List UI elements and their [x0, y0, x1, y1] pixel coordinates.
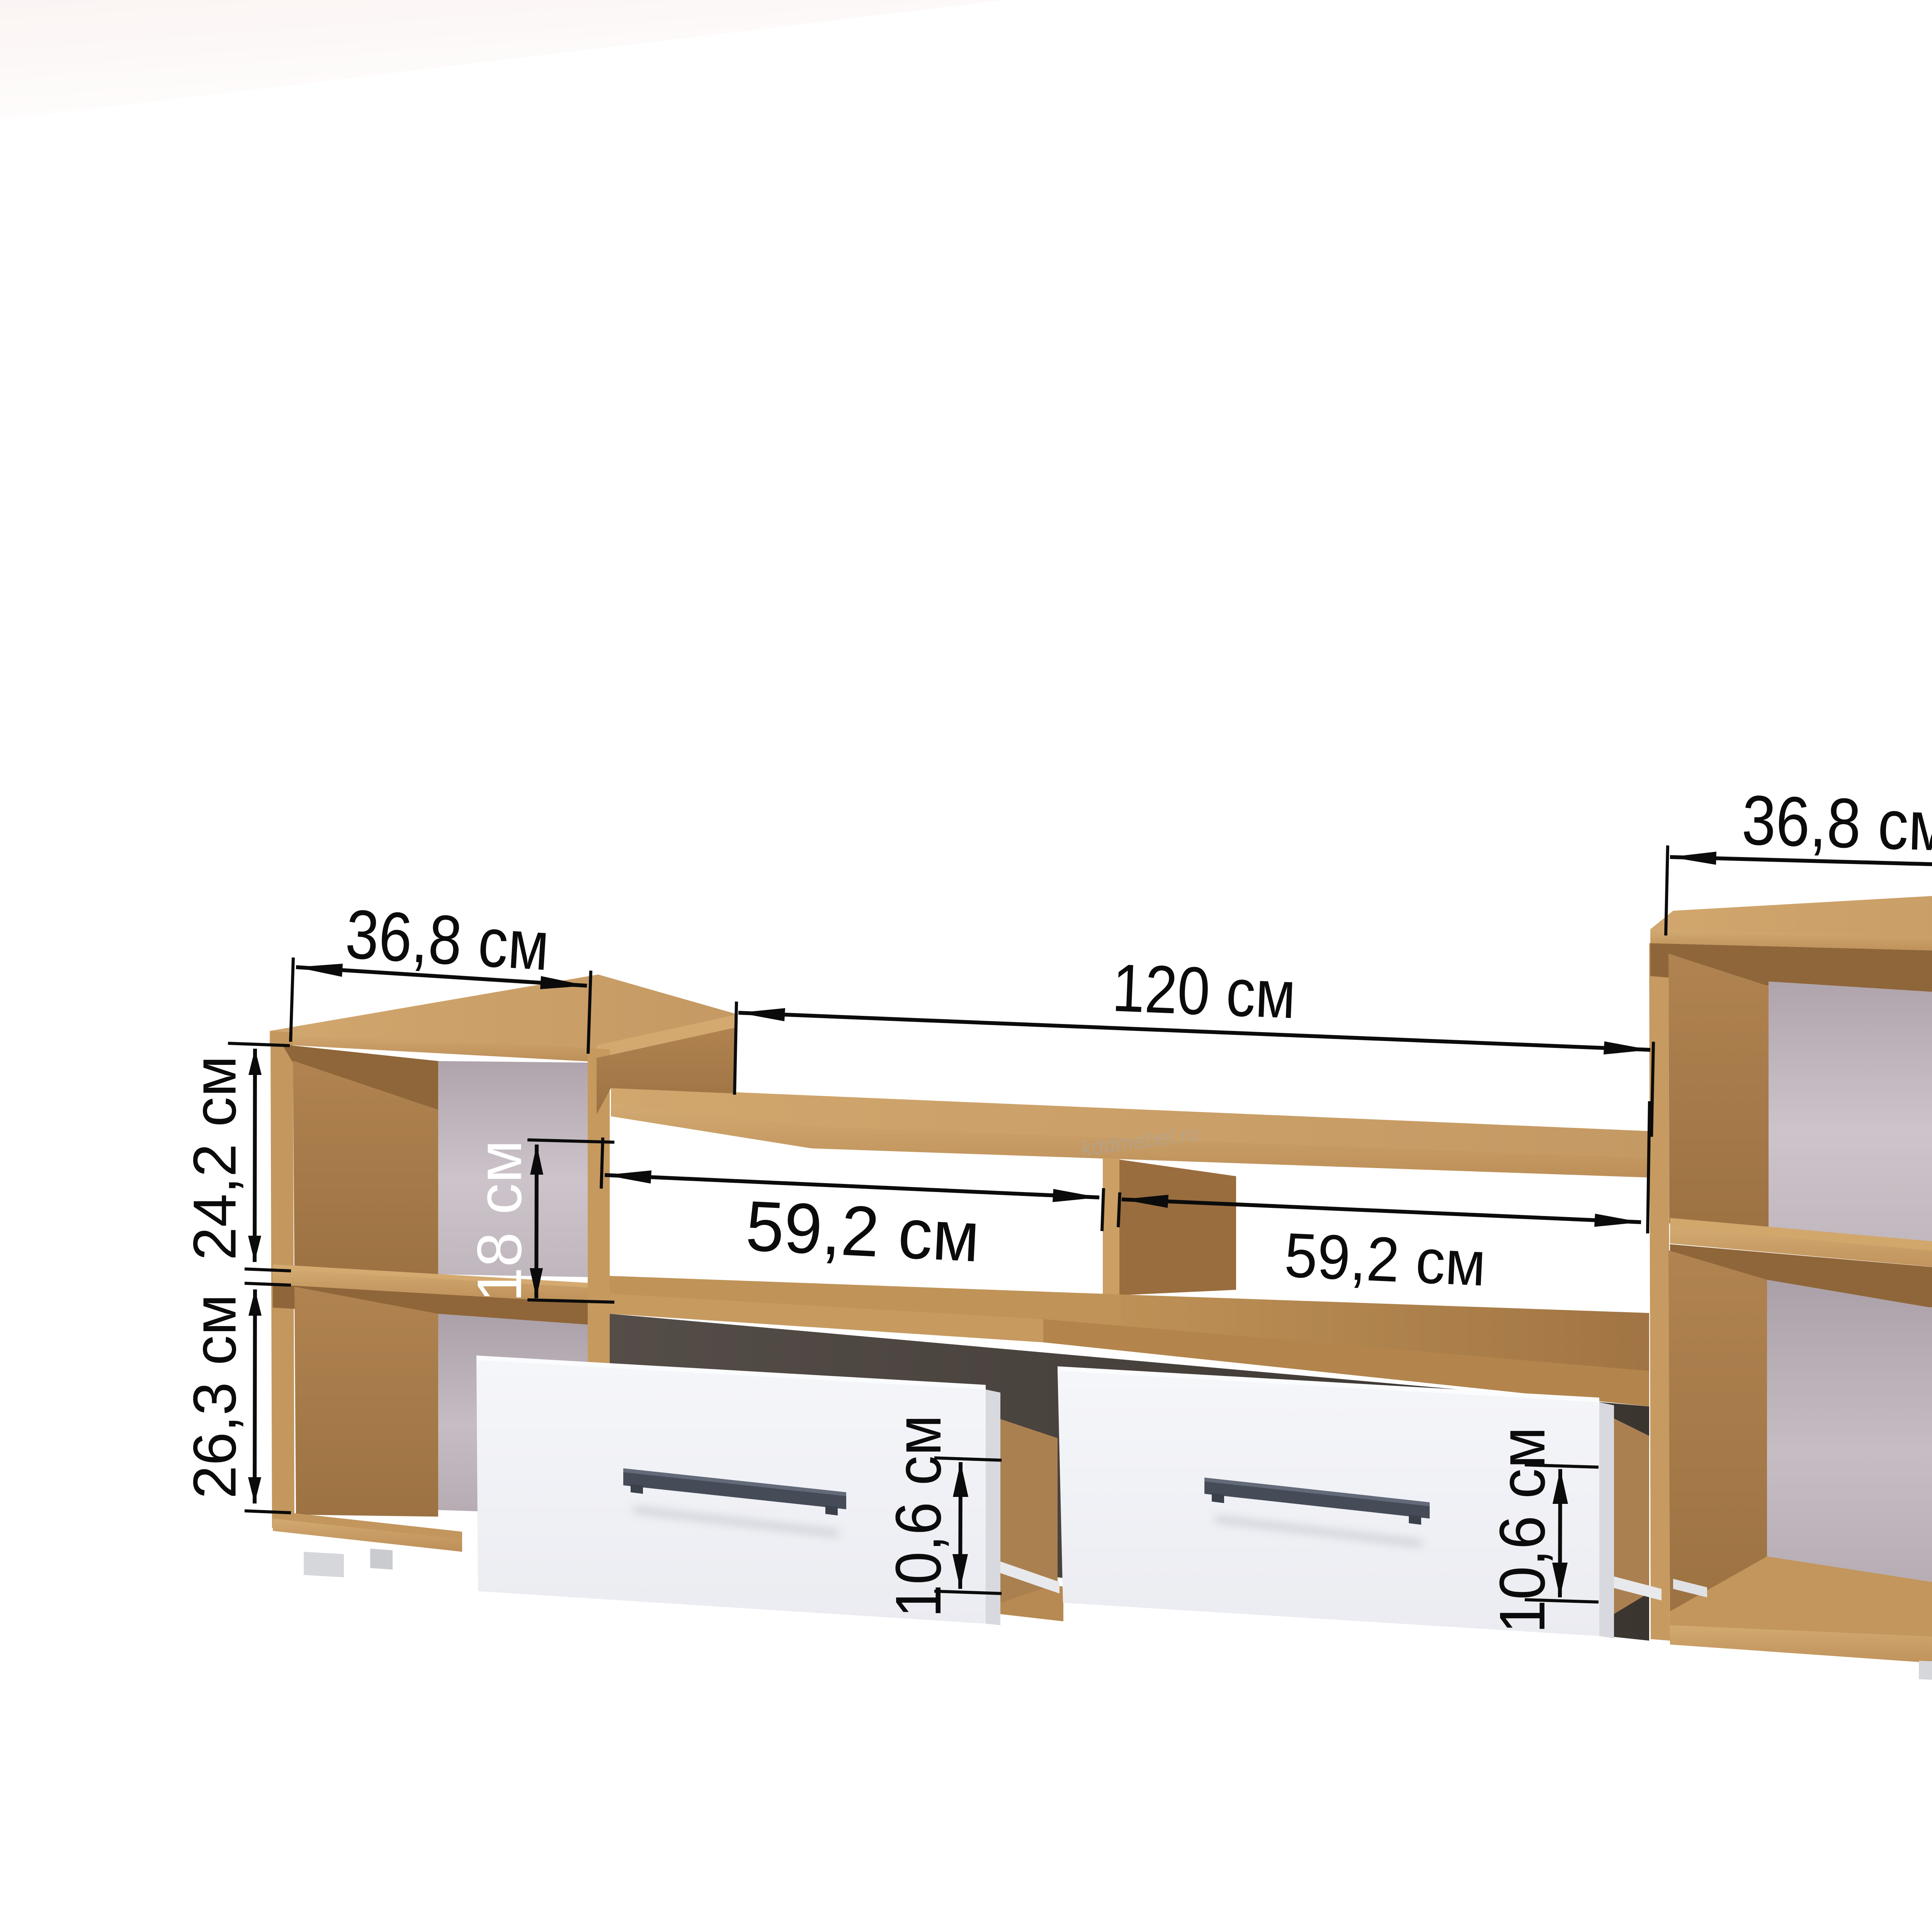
- svg-text:26,3 см: 26,3 см: [181, 1294, 249, 1499]
- svg-text:18 см: 18 см: [464, 1140, 535, 1302]
- svg-text:120 см: 120 см: [1111, 950, 1297, 1033]
- svg-text:24,2 см: 24,2 см: [181, 1056, 249, 1260]
- svg-text:59,2 см: 59,2 см: [1283, 1219, 1488, 1299]
- svg-text:10,6 см: 10,6 см: [1486, 1427, 1558, 1634]
- svg-text:36,8 см: 36,8 см: [1741, 781, 1932, 866]
- svg-text:36,8 см: 36,8 см: [344, 895, 551, 985]
- svg-text:10,6 см: 10,6 см: [883, 1415, 954, 1618]
- svg-text:59,2 см: 59,2 см: [744, 1185, 981, 1276]
